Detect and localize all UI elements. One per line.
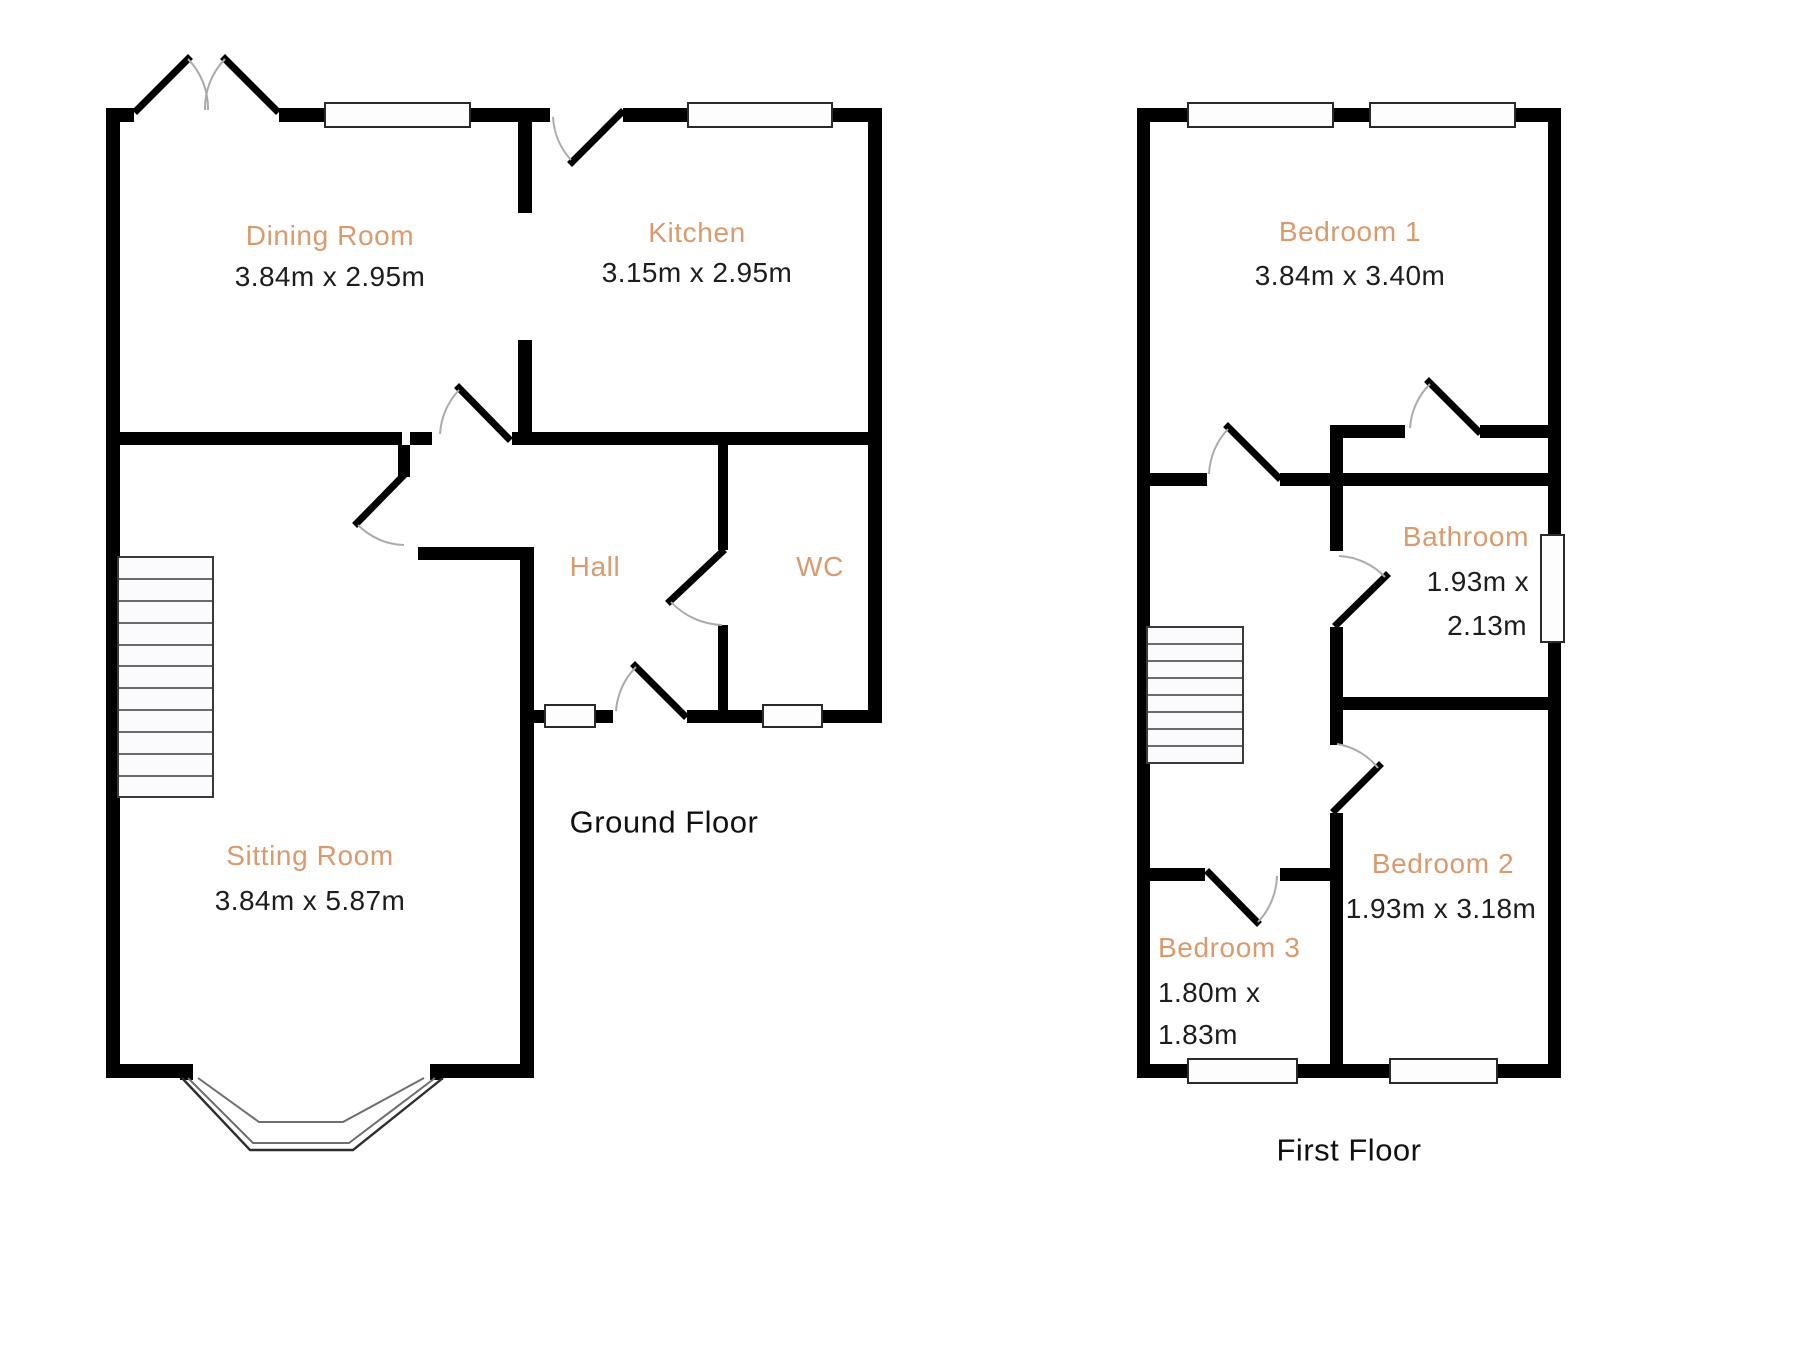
room-label-wc: WC xyxy=(796,553,844,581)
floorplan-page: Dining Room 3.84m x 2.95m Kitchen 3.15m … xyxy=(0,0,1813,1347)
french-doors-icon xyxy=(137,59,276,110)
front-door-icon xyxy=(616,666,684,715)
window xyxy=(1188,103,1333,127)
window xyxy=(1541,535,1564,642)
room-label-bedroom-3: Bedroom 3 xyxy=(1158,934,1300,962)
room-label-dining-room: Dining Room xyxy=(246,222,414,250)
room-label-kitchen: Kitchen xyxy=(648,219,746,247)
ground-floor-title: Ground Floor xyxy=(570,807,759,838)
room-label-sitting-room: Sitting Room xyxy=(226,842,394,870)
room-dims-bedroom-1: 3.84m x 3.40m xyxy=(1255,262,1445,290)
room-dims-bedroom-3-line2: 1.83m xyxy=(1158,1021,1238,1049)
sitting-room-door-icon xyxy=(357,476,404,545)
floorplan-graphics xyxy=(0,0,1813,1347)
window xyxy=(545,705,595,727)
room-label-bedroom-2: Bedroom 2 xyxy=(1372,850,1514,878)
bedroom1-door-icon xyxy=(1209,427,1278,477)
room-label-bathroom: Bathroom xyxy=(1403,523,1529,551)
room-dims-bathroom-line1: 1.93m x xyxy=(1427,568,1529,596)
room-dims-sitting-room: 3.84m x 5.87m xyxy=(215,887,405,915)
window xyxy=(763,705,822,727)
window xyxy=(1188,1059,1297,1083)
ground-floor-walls xyxy=(106,108,882,1080)
room-label-hall: Hall xyxy=(570,553,621,581)
bedroom3-door-icon xyxy=(1209,873,1277,922)
room-dims-bathroom-line2: 2.13m xyxy=(1447,612,1527,640)
room-label-bedroom-1: Bedroom 1 xyxy=(1279,218,1421,246)
ground-floor-plan xyxy=(106,59,882,1150)
bathroom-door-icon xyxy=(1337,556,1386,624)
staircase-first-icon xyxy=(1147,627,1243,763)
window xyxy=(325,103,470,127)
cupboard-door-icon xyxy=(1410,382,1478,431)
bedroom2-door-icon xyxy=(1335,744,1379,810)
room-dims-dining-room: 3.84m x 2.95m xyxy=(235,263,425,291)
window xyxy=(688,103,832,127)
wc-door-icon xyxy=(670,552,722,625)
ground-floor-windows xyxy=(325,103,832,727)
window xyxy=(1370,103,1515,127)
room-dims-bedroom-3-line1: 1.80m x xyxy=(1158,979,1260,1007)
room-dims-kitchen: 3.15m x 2.95m xyxy=(602,259,792,287)
first-floor-title: First Floor xyxy=(1277,1135,1422,1166)
staircase-ground-icon xyxy=(118,557,213,797)
bay-window-icon xyxy=(182,1078,443,1150)
window xyxy=(1390,1059,1497,1083)
room-dims-bedroom-2: 1.93m x 3.18m xyxy=(1346,895,1536,923)
kitchen-door-icon xyxy=(553,113,621,162)
dining-door-icon xyxy=(440,388,508,438)
